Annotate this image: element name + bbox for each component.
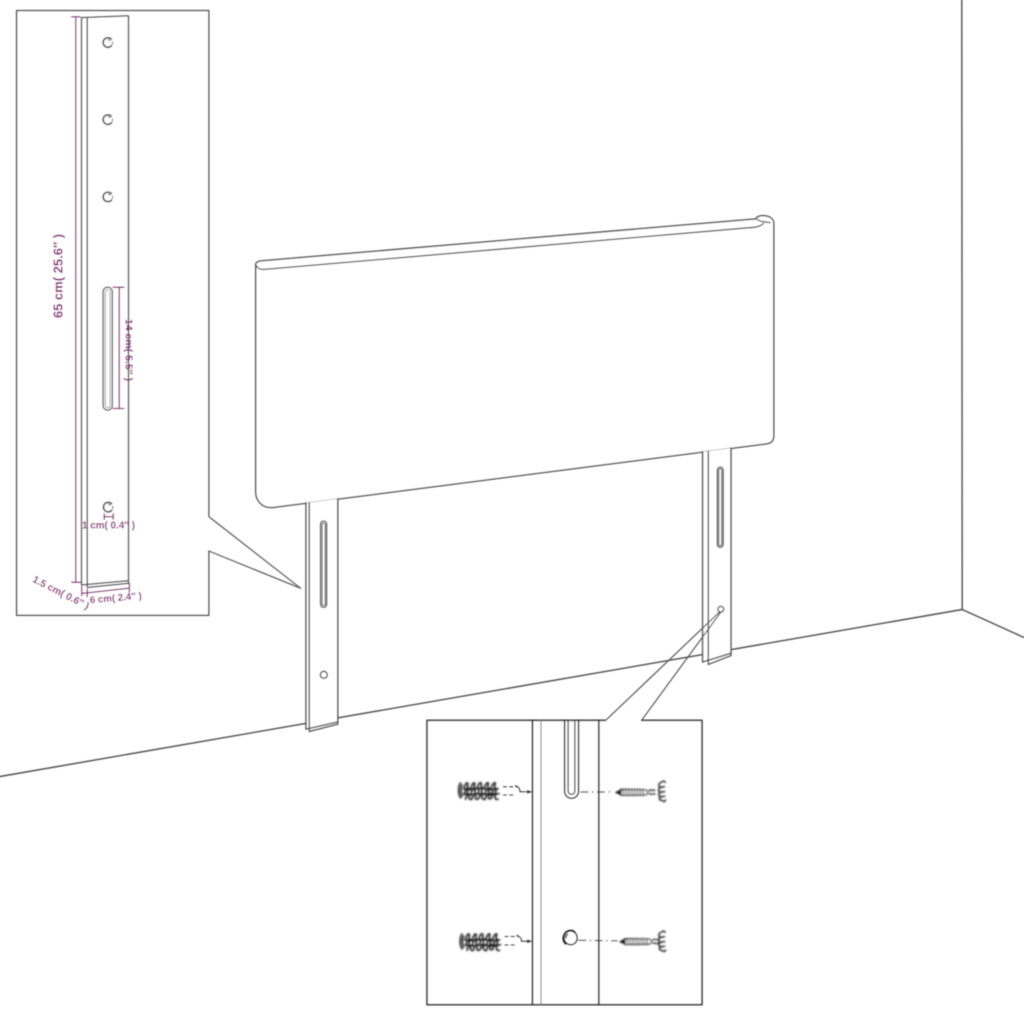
svg-text:65 cm( 25.6″ ): 65 cm( 25.6″ ): [51, 234, 66, 318]
svg-text:14 cm( 5.5″ ): 14 cm( 5.5″ ): [122, 319, 134, 381]
svg-text:1 cm( 0.4″ ): 1 cm( 0.4″ ): [82, 521, 135, 532]
